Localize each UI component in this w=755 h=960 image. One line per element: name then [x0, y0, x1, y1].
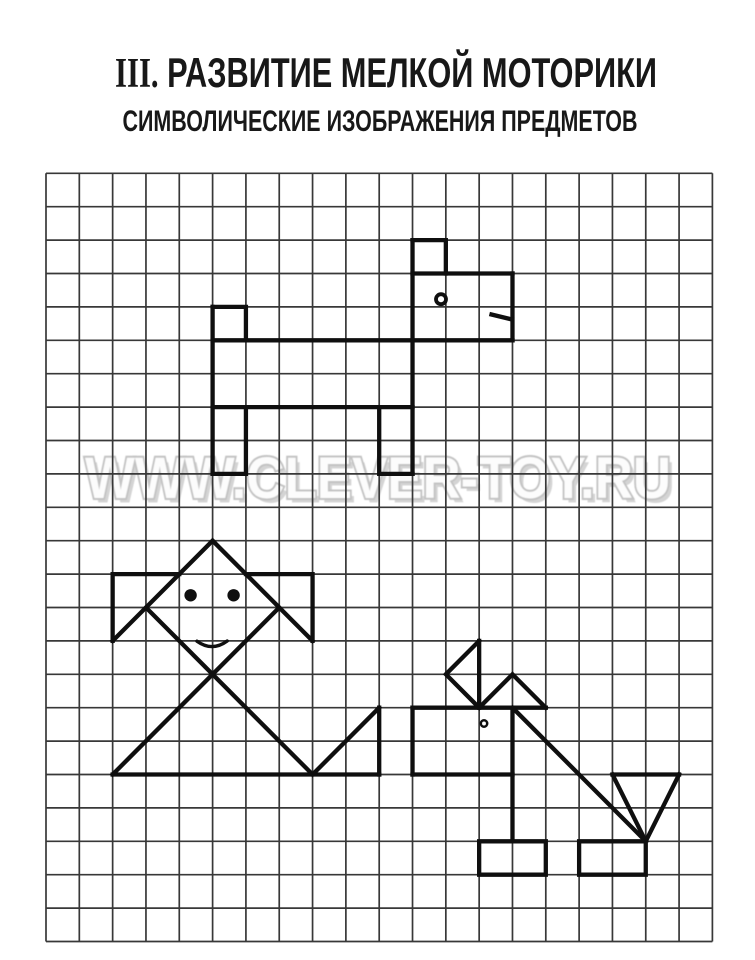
- svg-text:СИМВОЛИЧЕСКИЕ ИЗОБРАЖЕНИЯ ПРЕД: СИМВОЛИЧЕСКИЕ ИЗОБРАЖЕНИЯ ПРЕДМЕТОВ: [123, 105, 638, 138]
- svg-text:III. РАЗВИТИЕ МЕЛКОЙ МОТОРИКИ: III. РАЗВИТИЕ МЕЛКОЙ МОТОРИКИ: [115, 48, 657, 97]
